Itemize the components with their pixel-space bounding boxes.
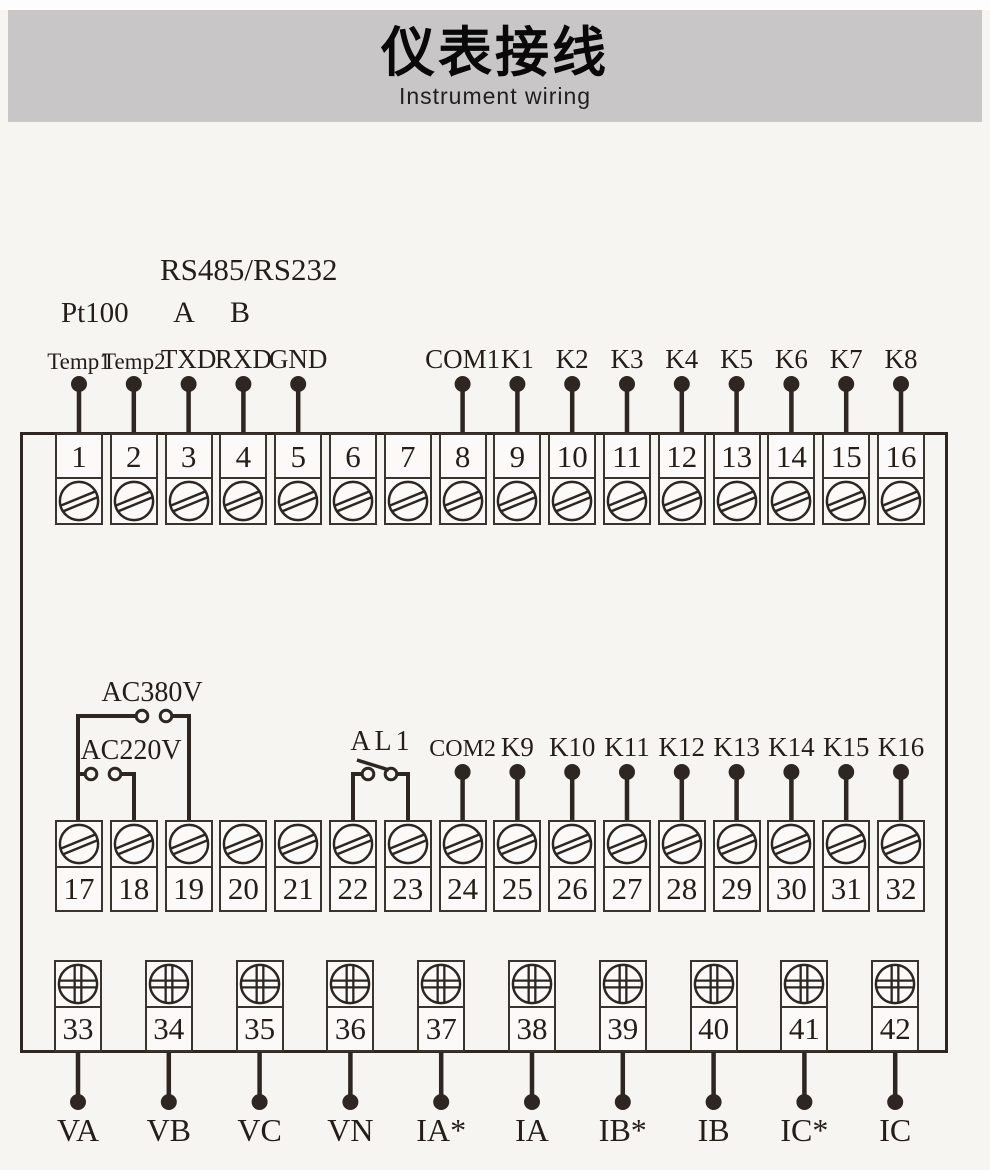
screw-slot-icon [442,823,484,865]
terminal-screw [165,820,213,868]
terminal-5: 5 [274,433,322,525]
terminal-screw [713,820,761,868]
terminal-screw [767,477,815,525]
terminal-number: 11 [603,433,651,479]
terminal-19: 19 [165,820,213,912]
terminal-11: 11 [603,433,651,525]
screw-slot-icon [880,823,922,865]
screw-cross-icon [693,963,735,1005]
terminal-21: 21 [274,820,322,912]
terminal-34: 34 [145,960,193,1052]
screw-slot-icon [716,823,758,865]
pin-label: K13 [713,732,760,763]
terminal-screw [877,820,925,868]
pin-label: IC [879,1112,911,1149]
pin-label: COM2 [429,736,496,763]
terminal-1: 1 [55,433,103,525]
pin-label: K7 [830,344,863,375]
terminal-screw [439,477,487,525]
terminal-screw [780,960,828,1008]
terminal-screw [55,820,103,868]
pin-dot [71,376,87,392]
pin-dot [674,764,690,780]
terminal-9: 9 [493,433,541,525]
terminal-17: 17 [55,820,103,912]
terminal-number: 12 [658,433,706,479]
terminal-14: 14 [767,433,815,525]
screw-slot-icon [661,480,703,522]
pin-dot [564,764,580,780]
terminal-38: 38 [508,960,556,1052]
rs485-rs232-label: RS485/RS232 [160,252,337,288]
terminal-screw [274,477,322,525]
terminal-number: 26 [548,866,596,912]
pin-label: RXD [215,344,272,375]
terminal-number: 4 [219,433,267,479]
wiring-diagram-page: 仪表接线 Instrument wiring RS485/RS232 Pt100… [0,0,990,1170]
pin-dot [783,376,799,392]
terminal-number: 41 [780,1006,828,1052]
terminal-26: 26 [548,820,596,912]
terminal-screw [110,820,158,868]
screw-cross-icon [602,963,644,1005]
pin-label: K5 [720,344,753,375]
terminal-screw [658,477,706,525]
terminal-32: 32 [877,820,925,912]
screw-slot-icon [496,823,538,865]
terminal-screw [493,820,541,868]
terminal-number: 30 [767,866,815,912]
pin-dot [181,376,197,392]
pt100-label: Pt100 [61,297,129,330]
terminal-number: 35 [236,1006,284,1052]
terminal-number: 31 [822,866,870,912]
terminal-10: 10 [548,433,596,525]
ac380v-contact-left [136,710,148,722]
ac220v-contact-left [85,768,97,780]
terminal-8: 8 [439,433,487,525]
terminal-screw [493,477,541,525]
terminal-screw [384,477,432,525]
al1-wire-right [397,774,408,822]
screw-slot-icon [277,480,319,522]
pin-dot [161,1094,177,1110]
terminal-screw [713,477,761,525]
ac380v-wire [172,716,189,822]
terminal-number: 33 [54,1006,102,1052]
pin-label: K3 [611,344,644,375]
terminal-screw [871,960,919,1008]
pin-dot [674,376,690,392]
pin-label: GND [269,344,328,375]
terminal-screw [236,960,284,1008]
ac220v-wire [121,774,134,822]
pin-label: K2 [556,344,589,375]
terminal-number: 17 [55,866,103,912]
terminal-screw [329,477,377,525]
pin-dot [706,1094,722,1110]
pin-label: VA [57,1112,99,1149]
terminal-screw [55,477,103,525]
pin-label: VN [327,1112,373,1149]
terminal-screw [822,820,870,868]
terminal-screw [384,820,432,868]
pin-label: VB [147,1112,191,1149]
screw-slot-icon [332,823,374,865]
terminal-number: 39 [599,1006,647,1052]
terminal-screw [54,960,102,1008]
terminal-screw [219,820,267,868]
screw-slot-icon [606,480,648,522]
channel-a-label: A [173,296,195,330]
screw-slot-icon [606,823,648,865]
terminal-30: 30 [767,820,815,912]
screw-slot-icon [825,823,867,865]
terminal-25: 25 [493,820,541,912]
pin-label: K9 [501,732,534,763]
terminal-screw [548,477,596,525]
screw-slot-icon [770,480,812,522]
pin-dot [433,1094,449,1110]
screw-slot-icon [661,823,703,865]
screw-cross-icon [783,963,825,1005]
pin-label: K16 [878,732,925,763]
terminal-number: 37 [417,1006,465,1052]
pin-dot [796,1094,812,1110]
pin-dot [619,376,635,392]
terminal-41: 41 [780,960,828,1052]
terminal-screw [658,820,706,868]
pin-label: K8 [885,344,918,375]
terminal-16: 16 [877,433,925,525]
ac380v-label: AC380V [101,677,202,709]
terminal-number: 6 [329,433,377,479]
terminal-screw [822,477,870,525]
pin-dot [729,764,745,780]
screw-slot-icon [332,480,374,522]
screw-slot-icon [442,480,484,522]
terminal-6: 6 [329,433,377,525]
terminal-28: 28 [658,820,706,912]
terminal-39: 39 [599,960,647,1052]
pin-label: K1 [501,344,534,375]
pin-dot [455,764,471,780]
screw-slot-icon [58,480,100,522]
terminal-number: 27 [603,866,651,912]
ac220v-contact-right [109,768,121,780]
al1-contact-left [362,768,374,780]
screw-slot-icon [387,480,429,522]
pin-dot [290,376,306,392]
terminal-number: 10 [548,433,596,479]
pin-label: IA [515,1112,549,1149]
pin-dot [729,376,745,392]
terminal-screw [603,820,651,868]
pin-label: K6 [775,344,808,375]
terminal-number: 21 [274,866,322,912]
terminal-screw [439,820,487,868]
terminal-screw [329,820,377,868]
screw-slot-icon [551,480,593,522]
terminal-screw [417,960,465,1008]
pin-label: IC* [780,1112,828,1149]
terminal-number: 42 [871,1006,919,1052]
screw-slot-icon [880,480,922,522]
terminal-number: 40 [690,1006,738,1052]
pin-dot [783,764,799,780]
pin-label: K15 [823,732,870,763]
terminal-20: 20 [219,820,267,912]
screw-slot-icon [387,823,429,865]
screw-cross-icon [329,963,371,1005]
ac220v-label: AC220V [80,735,181,767]
screw-slot-icon [58,823,100,865]
screw-slot-icon [551,823,593,865]
terminal-number: 25 [493,866,541,912]
terminal-number: 23 [384,866,432,912]
terminal-number: 8 [439,433,487,479]
terminal-screw [603,477,651,525]
terminal-screw [145,960,193,1008]
al1-switch-lever [357,760,389,770]
terminal-27: 27 [603,820,651,912]
screw-slot-icon [496,480,538,522]
terminal-15: 15 [822,433,870,525]
terminal-29: 29 [713,820,761,912]
terminal-24: 24 [439,820,487,912]
screw-slot-icon [113,823,155,865]
terminal-screw [877,477,925,525]
screw-slot-icon [825,480,867,522]
pin-dot [524,1094,540,1110]
terminal-number: 24 [439,866,487,912]
screw-cross-icon [57,963,99,1005]
screw-slot-icon [168,480,210,522]
terminal-number: 2 [110,433,158,479]
pin-label: IA* [416,1112,466,1149]
screw-cross-icon [239,963,281,1005]
screw-cross-icon [148,963,190,1005]
pin-label: IB* [599,1112,647,1149]
terminal-42: 42 [871,960,919,1052]
terminal-screw [690,960,738,1008]
terminal-number: 36 [326,1006,374,1052]
pin-dot [838,764,854,780]
screw-slot-icon [113,480,155,522]
terminal-number: 19 [165,866,213,912]
terminal-number: 7 [384,433,432,479]
terminal-33: 33 [54,960,102,1052]
al1-wire-left [353,774,362,822]
terminal-35: 35 [236,960,284,1052]
pin-dot [564,376,580,392]
pin-dot [887,1094,903,1110]
pin-label: VC [237,1112,281,1149]
terminal-23: 23 [384,820,432,912]
terminal-number: 15 [822,433,870,479]
pin-label: K10 [549,732,596,763]
terminal-number: 3 [165,433,213,479]
terminal-12: 12 [658,433,706,525]
screw-slot-icon [770,823,812,865]
terminal-number: 9 [493,433,541,479]
pin-label: IB [698,1112,730,1149]
terminal-number: 1 [55,433,103,479]
screw-cross-icon [511,963,553,1005]
screw-slot-icon [716,480,758,522]
pin-dot [342,1094,358,1110]
pin-label: K14 [768,732,815,763]
terminal-number: 34 [145,1006,193,1052]
pin-label: COM1 [425,344,500,375]
pin-dot [126,376,142,392]
pin-dot [893,764,909,780]
pin-label: K4 [665,344,698,375]
pin-label: Temp2 [102,349,166,375]
terminal-number: 32 [877,866,925,912]
screw-slot-icon [168,823,210,865]
terminal-number: 28 [658,866,706,912]
pin-dot [70,1094,86,1110]
channel-b-label: B [230,296,250,330]
terminal-number: 22 [329,866,377,912]
terminal-4: 4 [219,433,267,525]
screw-slot-icon [222,480,264,522]
terminal-screw [165,477,213,525]
terminal-37: 37 [417,960,465,1052]
pin-dot [509,376,525,392]
terminal-22: 22 [329,820,377,912]
terminal-number: 38 [508,1006,556,1052]
screw-slot-icon [222,823,264,865]
terminal-40: 40 [690,960,738,1052]
terminal-screw [767,820,815,868]
pin-label: TXD [161,344,217,375]
terminal-7: 7 [384,433,432,525]
pin-dot [235,376,251,392]
pin-dot [252,1094,268,1110]
terminal-number: 29 [713,866,761,912]
pin-dot [893,376,909,392]
pin-label: K12 [659,732,706,763]
terminal-18: 18 [110,820,158,912]
terminal-36: 36 [326,960,374,1052]
terminal-number: 14 [767,433,815,479]
terminal-screw [599,960,647,1008]
terminal-2: 2 [110,433,158,525]
screw-cross-icon [874,963,916,1005]
terminal-number: 16 [877,433,925,479]
pin-dot [455,376,471,392]
terminal-screw [110,477,158,525]
al1-label: AL1 [350,726,413,758]
pin-label: K11 [604,732,650,763]
pin-dot [615,1094,631,1110]
terminal-screw [326,960,374,1008]
ac380v-contact-right [160,710,172,722]
terminal-3: 3 [165,433,213,525]
pin-dot [619,764,635,780]
terminal-screw [219,477,267,525]
pin-dot [838,376,854,392]
screw-cross-icon [420,963,462,1005]
screw-slot-icon [277,823,319,865]
terminal-13: 13 [713,433,761,525]
terminal-31: 31 [822,820,870,912]
terminal-number: 5 [274,433,322,479]
terminal-screw [274,820,322,868]
pin-dot [509,764,525,780]
terminal-number: 13 [713,433,761,479]
terminal-number: 18 [110,866,158,912]
terminal-screw [508,960,556,1008]
terminal-number: 20 [219,866,267,912]
terminal-screw [548,820,596,868]
